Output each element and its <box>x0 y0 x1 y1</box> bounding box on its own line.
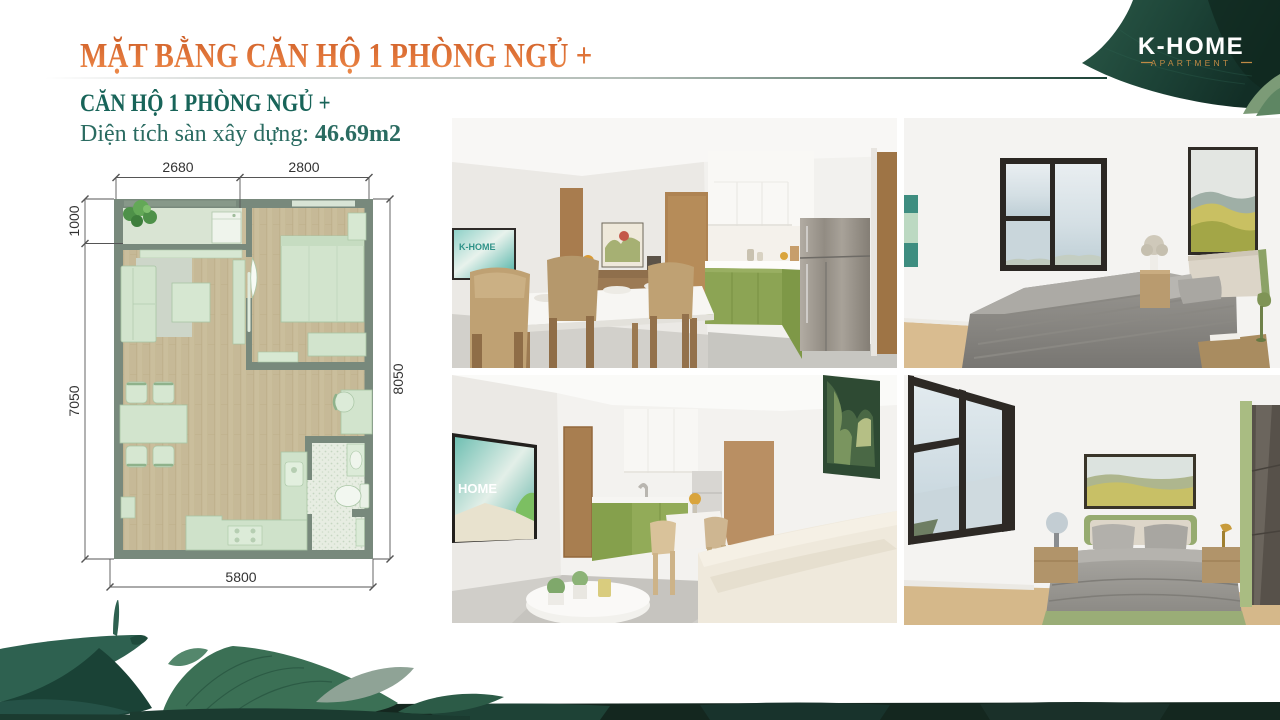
svg-text:HOME: HOME <box>458 481 497 496</box>
svg-text:K-HOME: K-HOME <box>459 242 496 252</box>
svg-text:2680: 2680 <box>162 159 193 175</box>
svg-text:5800: 5800 <box>225 569 256 585</box>
svg-text:1000: 1000 <box>66 205 82 236</box>
svg-text:7050: 7050 <box>66 385 82 416</box>
svg-text:K-HOME: K-HOME <box>1138 33 1244 60</box>
svg-text:APARTMENT: APARTMENT <box>1151 58 1231 68</box>
svg-text:8050: 8050 <box>390 363 406 394</box>
svg-text:2800: 2800 <box>288 159 319 175</box>
